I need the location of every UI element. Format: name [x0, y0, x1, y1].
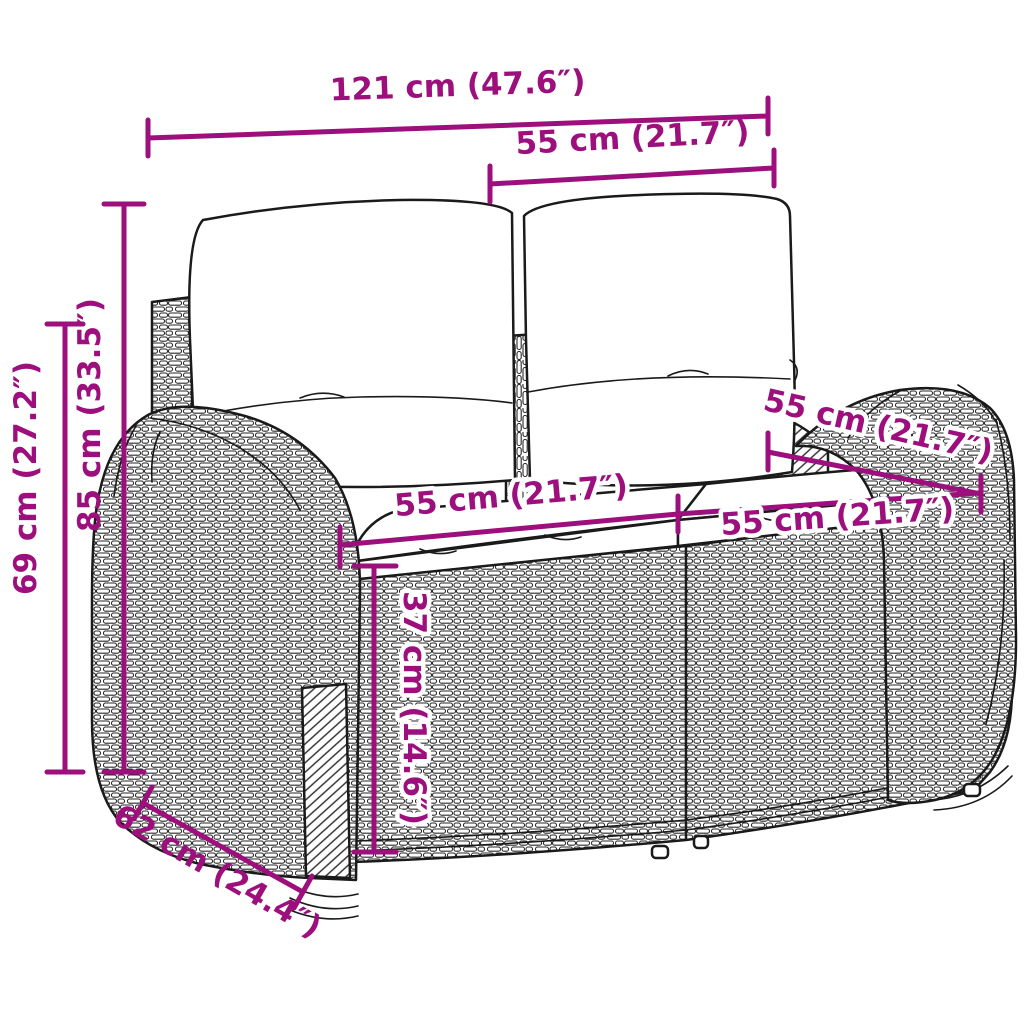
dimension-label-backrest-width: 55 cm (21.7″)	[515, 114, 751, 162]
back-cushion-right	[524, 194, 797, 486]
dimension-label-seat-height: 37 cm (14.6″)	[396, 591, 432, 825]
dimension-label-total-width: 121 cm (47.6″)	[329, 64, 586, 109]
bench-drawing	[92, 194, 1016, 919]
product-dimension-diagram: 121 cm (47.6″) 55 cm (21.7″) 85 cm (33.5…	[0, 0, 1024, 1024]
dimension-label-frame-height: 69 cm (27.2″)	[8, 361, 44, 595]
armrest-left-corner-post	[302, 684, 350, 878]
dimension-backrest-width: 55 cm (21.7″)	[490, 114, 774, 202]
dimension-label-total-height: 85 cm (33.5″)	[72, 298, 108, 532]
dimension-diagram-canvas: 121 cm (47.6″) 55 cm (21.7″) 85 cm (33.5…	[0, 0, 1024, 1024]
